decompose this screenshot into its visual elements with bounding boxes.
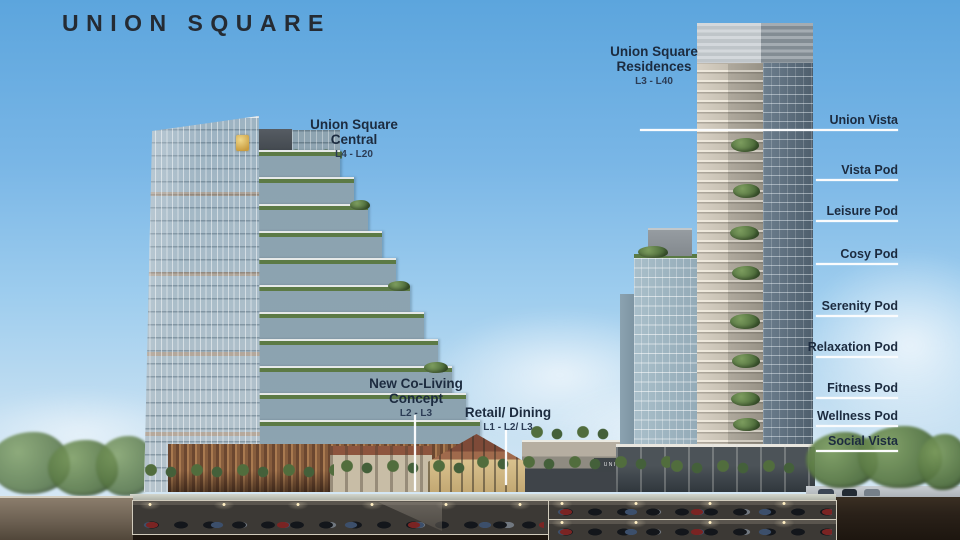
pod-label: Wellness Pod — [817, 409, 898, 423]
leader-line — [640, 129, 898, 131]
callout-cosy-pod: Cosy Pod — [816, 248, 898, 265]
sky-pod-tree — [732, 354, 760, 368]
residences-glass-volume — [763, 40, 813, 465]
parked-cars-row — [552, 504, 832, 519]
pod-label: Social Vista — [828, 434, 898, 448]
sky-pod-tree — [733, 184, 760, 198]
leader-line — [816, 425, 898, 427]
callout-vista-pod: Vista Pod — [816, 164, 898, 181]
pod-label: Leisure Pod — [826, 204, 898, 218]
callout-leisure-pod: Leisure Pod — [816, 205, 898, 222]
sky-pod-tree — [730, 226, 759, 240]
residences-low-wing — [620, 294, 635, 466]
sky-pod-tree — [733, 418, 760, 431]
leader-line — [816, 220, 898, 222]
callout-line: Residences — [588, 59, 720, 74]
sky-pod-tree — [731, 138, 759, 152]
pod-label: Union Vista — [829, 113, 898, 127]
callout-line: New Co-Living — [352, 376, 480, 391]
leader-line — [816, 356, 898, 358]
terrace-step — [256, 339, 438, 367]
callout-social-vista: Social Vista — [816, 435, 898, 452]
callout-central: Union Square Central L4 - L20 — [289, 117, 419, 160]
parked-cars-row — [138, 517, 544, 533]
street-trees — [664, 456, 814, 494]
leader-line-retail — [505, 430, 507, 485]
pod-label: Cosy Pod — [840, 247, 898, 261]
callout-line: Central — [289, 132, 419, 147]
sky-pod-tree — [732, 266, 760, 280]
callout-line: Union Square — [588, 44, 720, 59]
terrace-step — [256, 285, 410, 313]
leader-line — [816, 315, 898, 317]
terrace-step — [256, 231, 382, 259]
callout-serenity-pod: Serenity Pod — [816, 300, 898, 317]
leader-line — [816, 263, 898, 265]
leader-line — [816, 179, 898, 181]
terrace-tree — [388, 281, 410, 291]
callout-line: Union Square — [289, 117, 419, 132]
trees — [918, 434, 960, 490]
sky-pod-tree — [730, 314, 760, 329]
brand-title: UNION SQUARE — [62, 10, 331, 37]
callout-wellness-pod: Wellness Pod — [816, 410, 898, 427]
callout-retail: Retail/ Dining L1 - L2/ L3 — [446, 405, 570, 433]
pod-label: Vista Pod — [841, 163, 898, 177]
callout-levels: L1 - L2/ L3 — [446, 422, 570, 433]
callout-fitness-pod: Fitness Pod — [816, 382, 898, 399]
roof-garden-tree — [638, 246, 668, 258]
callout-relaxation-pod: Relaxation Pod — [808, 341, 898, 358]
callout-levels: L4 - L20 — [289, 149, 419, 160]
sky-pod-tree — [731, 392, 760, 406]
street-trees — [138, 460, 334, 494]
residences-low-volume — [634, 254, 700, 470]
retaining-wall — [0, 496, 133, 540]
leader-line — [816, 397, 898, 399]
pod-label: Fitness Pod — [827, 381, 898, 395]
parked-cars-row — [552, 524, 832, 540]
street-car — [842, 489, 857, 496]
street-trees — [334, 456, 474, 494]
callout-residences: Union Square Residences L3 - L40 — [588, 44, 720, 87]
terrace-step — [256, 312, 424, 340]
street-car — [864, 489, 880, 496]
developer-logo — [236, 135, 249, 151]
callout-union-vista: Union Vista — [640, 114, 898, 131]
street-trees — [470, 452, 670, 494]
leader-line — [816, 450, 898, 452]
central-tower-facade — [144, 116, 260, 492]
callout-line: Concept — [352, 391, 480, 406]
terrace-tree — [350, 200, 370, 210]
parking-ceiling-lights — [140, 502, 540, 511]
callout-levels: L3 - L40 — [588, 76, 720, 87]
callout-line: Retail/ Dining — [446, 405, 570, 420]
terrace-step — [256, 258, 396, 286]
terrace-tree — [424, 362, 448, 373]
architectural-rendering: UNION SQUARE UNION SQUARE Union Square C — [0, 0, 960, 540]
pod-label: Relaxation Pod — [808, 340, 898, 354]
terrace-step — [256, 204, 368, 232]
leader-line-coliving — [414, 415, 416, 491]
pod-label: Serenity Pod — [822, 299, 898, 313]
terrace-step — [256, 177, 354, 205]
